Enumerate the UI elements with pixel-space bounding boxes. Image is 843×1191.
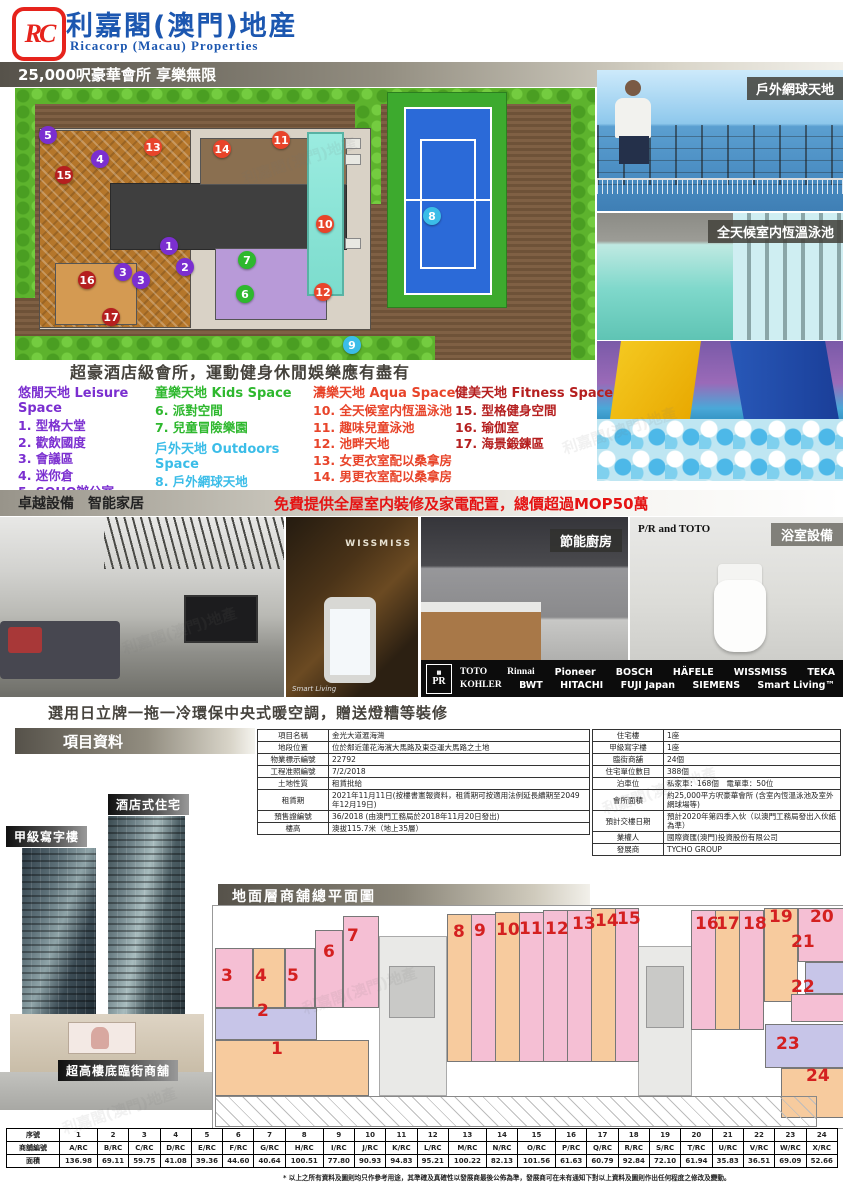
- info-label: 泊車位: [593, 778, 664, 790]
- project-info-banner: 項目資料: [15, 728, 255, 754]
- stair-block: [646, 966, 684, 1028]
- bathroom-label: 浴室設備: [771, 523, 843, 546]
- amenity-category-title: 健美天地 Fitness Space: [455, 382, 615, 401]
- brand-logo: Pioneer: [555, 667, 596, 678]
- area-table-cell: 3: [129, 1129, 160, 1142]
- tennis-net: [597, 178, 843, 194]
- area-table-cell: 5: [191, 1129, 222, 1142]
- amenity-item: 1. 型格大堂: [18, 418, 176, 435]
- info-label: 土地性質: [258, 778, 329, 790]
- shop-number-3: 3: [221, 968, 233, 985]
- area-table-cell: 14: [486, 1129, 517, 1142]
- shop-number-5: 5: [287, 968, 299, 985]
- info-label: 住宅樓: [593, 730, 664, 742]
- brand-logo: TEKA: [807, 667, 835, 678]
- area-table-cell: S/RC: [649, 1142, 680, 1155]
- brand-logo: SIEMENS: [692, 680, 740, 691]
- area-table-row-header: 面積: [7, 1155, 60, 1168]
- amenity-column-aqua: 濤樂天地 Aqua Space10. 全天候室内恆溫泳池11. 趣味兒童泳池12…: [313, 380, 478, 486]
- area-table-cell: 69.09: [775, 1155, 806, 1168]
- brand-logo: WISSMISS: [734, 667, 788, 678]
- area-table-cell: 12: [417, 1129, 448, 1142]
- info-value: 澳拔115.7米（地上35層）: [329, 823, 590, 835]
- info-value: 私家車：168個 電單車：50位: [664, 778, 841, 790]
- yellow-slide: [609, 341, 701, 426]
- shop-number-24: 24: [806, 1068, 830, 1085]
- amenity-item: 2. 歡飲國度: [18, 435, 176, 452]
- area-table-cell: 16: [556, 1129, 587, 1142]
- info-label: 臨街商舖: [593, 754, 664, 766]
- shop-number-10: 10: [496, 922, 520, 939]
- amenity-category-title: 濤樂天地 Aqua Space: [313, 382, 478, 401]
- plan-marker-16: 16: [78, 271, 96, 289]
- area-table-cell: 20: [681, 1129, 712, 1142]
- plan-marker-1: 1: [160, 237, 178, 255]
- amenity-column-fitness: 健美天地 Fitness Space15. 型格健身空間16. 瑜伽室17. 海…: [455, 380, 615, 453]
- office-tower: [22, 848, 96, 1016]
- photo-bathroom: P/R and TOTO 浴室設備: [630, 517, 843, 660]
- area-table-cell: H/RC: [285, 1142, 323, 1155]
- info-value: 7/2/2018: [329, 766, 590, 778]
- area-table-cell: G/RC: [254, 1142, 285, 1155]
- info-label: 住宅單位數目: [593, 766, 664, 778]
- player-shirt: [615, 98, 651, 138]
- area-table-cell: 39.36: [191, 1155, 222, 1168]
- shop-number-21: 21: [791, 934, 815, 951]
- shop-number-4: 4: [255, 968, 267, 985]
- label-office: 甲級寫字樓: [6, 826, 87, 847]
- plan-marker-2: 2: [176, 258, 194, 276]
- area-table-cell: 90.93: [354, 1155, 385, 1168]
- area-table-cell: R/RC: [618, 1142, 649, 1155]
- area-table-cell: 36.51: [743, 1155, 774, 1168]
- amenity-item: 14. 男更衣室配以桑拿房: [313, 469, 478, 486]
- info-value: 國際資匯(澳門)投資股份有限公司: [664, 832, 841, 844]
- area-table-cell: 94.83: [386, 1155, 417, 1168]
- amenity-item: 4. 迷你倉: [18, 468, 176, 485]
- amenity-item: 12. 池畔天地: [313, 436, 478, 453]
- info-value: 約25,000平方呎豪華會所 (含室內恆溫泳池及室外網球場等): [664, 790, 841, 811]
- kitchen-label: 節能廚房: [550, 529, 622, 552]
- area-table-cell: 15: [518, 1129, 556, 1142]
- area-table-cell: 13: [448, 1129, 486, 1142]
- area-table-cell: 4: [160, 1129, 191, 1142]
- player-shorts: [619, 136, 649, 164]
- area-table-cell: O/RC: [518, 1142, 556, 1155]
- plan-marker-15: 15: [55, 166, 73, 184]
- shop-number-1: 1: [271, 1041, 283, 1058]
- info-value: 388個: [664, 766, 841, 778]
- brand-row-1: TOTORinnaiPioneerBOSCHHÄFELEWISSMISSTEKA: [458, 666, 843, 679]
- plan-marker-9: 9: [343, 336, 361, 354]
- area-table-cell: N/RC: [486, 1142, 517, 1155]
- hvac-note: 選用日立牌一拖一冷環保中央式暖空調，贈送燈糟等裝修: [48, 702, 448, 723]
- brand-name-english: Ricacorp (Macau) Properties: [70, 38, 258, 54]
- plan-marker-14: 14: [213, 140, 231, 158]
- info-value: 租賃批給: [329, 778, 590, 790]
- blue-slide: [730, 341, 841, 431]
- project-info-table-right: 住宅樓1座甲級寫字樓1座臨街商舖24個住宅單位數目388個泊車位私家車：168個…: [592, 729, 841, 856]
- wissmiss-logo: WISSMISS: [345, 539, 412, 549]
- plan-marker-8: 8: [423, 207, 441, 225]
- shop-number-11: 11: [519, 921, 543, 938]
- info-value: 預計2020年第四季入伙（以澳門工務局發出入伙紙為準）: [664, 811, 841, 832]
- plan-marker-4: 4: [91, 150, 109, 168]
- lift-block: [389, 966, 435, 1018]
- area-table-cell: 69.11: [97, 1155, 128, 1168]
- area-table-cell: 19: [649, 1129, 680, 1142]
- area-table-cell: 22: [743, 1129, 774, 1142]
- info-label: 會所面積: [593, 790, 664, 811]
- area-table-cell: J/RC: [354, 1142, 385, 1155]
- shop-number-15: 15: [617, 911, 641, 928]
- pr-emblem-icon: ▦PR: [426, 664, 452, 694]
- area-table-cell: 59.75: [129, 1155, 160, 1168]
- photo-label-tennis: 戶外網球天地: [747, 77, 843, 100]
- area-table-row-header: 序號: [7, 1129, 60, 1142]
- grass-strip: [15, 88, 35, 298]
- area-table-cell: I/RC: [323, 1142, 354, 1155]
- brand-logo: Rinnai: [507, 667, 534, 678]
- amenity-column-kids-outdoors: 童樂天地 Kids Space6. 派對空間7. 兒童冒險樂園戶外天地 Outd…: [155, 380, 320, 507]
- deck-chair: [345, 154, 361, 165]
- shop-number-23: 23: [776, 1036, 800, 1053]
- area-table-cell: Q/RC: [587, 1142, 618, 1155]
- brand-row-2: KOHLERBWTHITACHIFUJI JapanSIEMENSSmart L…: [458, 679, 843, 692]
- amenity-category-title: 戶外天地 Outdoors Space: [155, 438, 320, 472]
- info-label: 工程准照編號: [258, 766, 329, 778]
- shop-number-18: 18: [743, 916, 767, 933]
- area-table-cell: 52.66: [806, 1155, 838, 1168]
- residential-tower: [108, 816, 185, 1016]
- info-value: TYCHO GROUP: [664, 844, 841, 856]
- label-shops: 超高樓底臨街商舖: [58, 1060, 178, 1081]
- shop-15: [615, 908, 639, 1062]
- plan-marker-3: 3: [132, 271, 150, 289]
- area-table-cell: E/RC: [191, 1142, 222, 1155]
- parking-area: [215, 1096, 817, 1127]
- info-label: 甲級寫字樓: [593, 742, 664, 754]
- area-table-cell: W/RC: [775, 1142, 806, 1155]
- smart-living-caption: Smart Living: [292, 685, 336, 693]
- shop-number-9: 9: [474, 923, 486, 940]
- area-table-cell: 7: [254, 1129, 285, 1142]
- area-table-cell: 61.94: [681, 1155, 712, 1168]
- brand-logo: BOSCH: [616, 667, 653, 678]
- deck-chair: [345, 138, 361, 149]
- equipment-title: 卓越設備 智能家居: [18, 493, 144, 513]
- area-table-cell: 136.98: [60, 1155, 98, 1168]
- tv-icon: [184, 595, 258, 643]
- shop-22: [791, 994, 843, 1022]
- plan-marker-7: 7: [238, 251, 256, 269]
- plan-marker-13: 13: [144, 138, 162, 156]
- shop-number-17: 17: [716, 916, 740, 933]
- grass-strip: [15, 88, 595, 104]
- photo-living-room: [0, 517, 284, 697]
- amenity-item: 17. 海景鍛鍊區: [455, 436, 615, 453]
- amenity-item: 11. 趣味兒童泳池: [313, 420, 478, 437]
- area-table-cell: A/RC: [60, 1142, 98, 1155]
- shop-number-19: 19: [769, 909, 793, 926]
- shop-number-12: 12: [545, 921, 569, 938]
- label-residence: 酒店式住宅: [108, 794, 189, 815]
- info-value: 36/2018 (由澳門工務局於2018年11月20日發出): [329, 811, 590, 823]
- amenity-item: 8. 戶外網球天地: [155, 474, 320, 491]
- area-table-cell: M/RC: [448, 1142, 486, 1155]
- area-table-cell: 23: [775, 1129, 806, 1142]
- shop-number-13: 13: [572, 916, 596, 933]
- smartphone-screen: [330, 609, 370, 675]
- info-label: 租賃期: [258, 790, 329, 811]
- bathroom-brand-text: P/R and TOTO: [638, 523, 710, 535]
- toilet-icon: [714, 580, 766, 652]
- kitchen-island: [421, 602, 541, 660]
- info-label: 業權人: [593, 832, 664, 844]
- info-label: 項目名稱: [258, 730, 329, 742]
- building-rendering: 酒店式住宅 甲級寫字樓 超高樓底臨街商舖: [0, 780, 212, 1110]
- plan-marker-10: 10: [316, 215, 334, 233]
- shop-1: [215, 1040, 369, 1096]
- area-table-cell: K/RC: [386, 1142, 417, 1155]
- info-label: 預計交樓日期: [593, 811, 664, 832]
- shop-number-22: 22: [791, 979, 815, 996]
- shop-number-14: 14: [595, 913, 619, 930]
- red-cushion: [8, 627, 42, 653]
- area-table-cell: 92.84: [618, 1155, 649, 1168]
- area-table-cell: 100.51: [285, 1155, 323, 1168]
- amenity-column-leisure: 悠閒天地 Leisure Space1. 型格大堂2. 歡飲國度3. 會議區4.…: [18, 380, 176, 501]
- area-table-cell: F/RC: [223, 1142, 254, 1155]
- amenity-item: 15. 型格健身空間: [455, 403, 615, 420]
- photo-outdoor-tennis: 戶外網球天地: [597, 70, 843, 211]
- brand-logo: Smart Living™: [757, 680, 835, 691]
- grass-strip: [571, 104, 595, 360]
- equipment-highlight: 免費提供全屋室内裝修及家電配置，總價超過MOP50萬: [274, 493, 649, 514]
- info-value: 1座: [664, 730, 841, 742]
- brand-logo: HÄFELE: [673, 667, 714, 678]
- area-table-cell: 82.13: [486, 1155, 517, 1168]
- deck-chair: [345, 238, 361, 249]
- photo-label-pool: 全天候室内恆溫泳池: [708, 220, 843, 243]
- shop-number-6: 6: [323, 944, 335, 961]
- area-table-cell: L/RC: [417, 1142, 448, 1155]
- info-label: 發展商: [593, 844, 664, 856]
- area-table-cell: 6: [223, 1129, 254, 1142]
- area-table-cell: 60.79: [587, 1155, 618, 1168]
- shop-number-7: 7: [347, 928, 359, 945]
- shopplan-title: 地面層商舖總平面圖: [218, 884, 590, 907]
- shop-number-2: 2: [257, 1003, 269, 1020]
- area-table-cell: 77.80: [323, 1155, 354, 1168]
- plan-marker-6: 6: [236, 285, 254, 303]
- area-table-cell: 44.60: [223, 1155, 254, 1168]
- area-table-cell: X/RC: [806, 1142, 838, 1155]
- area-table-cell: 1: [60, 1129, 98, 1142]
- info-value: 金光大道滙海灣: [329, 730, 590, 742]
- area-table-cell: 41.08: [160, 1155, 191, 1168]
- tennis-surround: [387, 92, 507, 308]
- brand-logo: HITACHI: [560, 680, 603, 691]
- area-table-cell: 8: [285, 1129, 323, 1142]
- area-table-cell: 100.22: [448, 1155, 486, 1168]
- photo-indoor-pool: 全天候室内恆溫泳池: [597, 213, 843, 340]
- info-value: 22792: [329, 754, 590, 766]
- area-table-cell: 24: [806, 1129, 838, 1142]
- info-label: 預售證編號: [258, 811, 329, 823]
- amenity-item: 13. 女更衣室配以桑拿房: [313, 453, 478, 470]
- project-info-table-left: 項目名稱金光大道滙海灣地段位置位於鄰近蓮花海濱大馬路及東亞運大馬路之土地物業標示…: [257, 729, 590, 835]
- flyer-page: RC 利嘉閣(澳門)地産 Ricacorp (Macau) Properties…: [0, 0, 843, 1191]
- grass-strip: [15, 336, 435, 360]
- area-table-cell: 17: [587, 1129, 618, 1142]
- lap-pool: [307, 132, 344, 296]
- ceiling-detail: [104, 517, 284, 569]
- area-table-row-header: 商舖編號: [7, 1142, 60, 1155]
- area-table-cell: 40.64: [254, 1155, 285, 1168]
- shop-area-table: 序號12345678910111213141516171819202122232…: [6, 1128, 838, 1168]
- equipment-banner: 卓越設備 智能家居 免費提供全屋室内裝修及家電配置，總價超過MOP50萬: [0, 490, 843, 516]
- plan-marker-17: 17: [102, 308, 120, 326]
- plan-marker-3: 3: [114, 263, 132, 281]
- shop-number-8: 8: [453, 924, 465, 941]
- area-table-cell: 35.83: [712, 1155, 743, 1168]
- area-table-cell: 9: [323, 1129, 354, 1142]
- area-table-cell: 101.56: [518, 1155, 556, 1168]
- brand-logos-bar: ▦PR TOTORinnaiPioneerBOSCHHÄFELEWISSMISS…: [421, 660, 843, 697]
- info-value: 2021年11月11日(按樓書憲報資料，租賃期可按適用法例延長續期至2049年1…: [329, 790, 590, 811]
- shop-number-20: 20: [810, 909, 834, 926]
- area-table-cell: 11: [386, 1129, 417, 1142]
- shopplan-drawing: 123456789101112131415161718192021222324: [212, 905, 843, 1129]
- info-value: 24個: [664, 754, 841, 766]
- plan-marker-5: 5: [39, 126, 57, 144]
- brand-logo: BWT: [519, 680, 543, 691]
- info-label: 地段位置: [258, 742, 329, 754]
- billboard: [68, 1022, 136, 1054]
- amenity-item: 10. 全天候室内恆溫泳池: [313, 403, 478, 420]
- area-table-cell: 10: [354, 1129, 385, 1142]
- player-head: [625, 80, 641, 96]
- info-label: 物業標示編號: [258, 754, 329, 766]
- amenity-item: 3. 會議區: [18, 451, 176, 468]
- brand-logo: TOTO: [460, 667, 487, 678]
- area-table-cell: 21: [712, 1129, 743, 1142]
- area-table-cell: U/RC: [712, 1142, 743, 1155]
- area-table-cell: 61.63: [556, 1155, 587, 1168]
- amenity-category-title: 童樂天地 Kids Space: [155, 382, 320, 401]
- photo-smart-home: WISSMISS Smart Living: [286, 517, 418, 697]
- area-table-cell: T/RC: [681, 1142, 712, 1155]
- area-table-cell: B/RC: [97, 1142, 128, 1155]
- disclaimer: * 以上之所有資料及圖則均只作參考用途，其準確及真確性以發展商最後公佈為準，發展…: [283, 1172, 731, 1182]
- area-table-cell: 72.10: [649, 1155, 680, 1168]
- ball-pit: [597, 419, 843, 481]
- plan-marker-11: 11: [272, 131, 290, 149]
- brand-logo: FUJI Japan: [621, 680, 676, 691]
- area-table-cell: 2: [97, 1129, 128, 1142]
- area-table-cell: D/RC: [160, 1142, 191, 1155]
- area-table-cell: P/RC: [556, 1142, 587, 1155]
- amenity-item: 7. 兒童冒險樂園: [155, 420, 320, 437]
- amenity-item: 6. 派對空間: [155, 403, 320, 420]
- amenity-category-title: 悠閒天地 Leisure Space: [18, 382, 176, 416]
- photo-kids-ballpit: [597, 341, 843, 481]
- amenity-item: 16. 瑜伽室: [455, 420, 615, 437]
- photo-kitchen: 節能廚房: [421, 517, 628, 660]
- info-value: 位於鄰近蓮花海濱大馬路及東亞運大馬路之土地: [329, 742, 590, 754]
- plan-marker-12: 12: [314, 283, 332, 301]
- ricacorp-logo-icon: RC: [12, 7, 66, 61]
- brand-logo: KOHLER: [460, 680, 502, 691]
- area-table-cell: 18: [618, 1129, 649, 1142]
- info-value: 1座: [664, 742, 841, 754]
- area-table-cell: V/RC: [743, 1142, 774, 1155]
- area-table-cell: 95.21: [417, 1155, 448, 1168]
- info-label: 樓高: [258, 823, 329, 835]
- area-table-cell: C/RC: [129, 1142, 160, 1155]
- tennis-court: [404, 107, 492, 295]
